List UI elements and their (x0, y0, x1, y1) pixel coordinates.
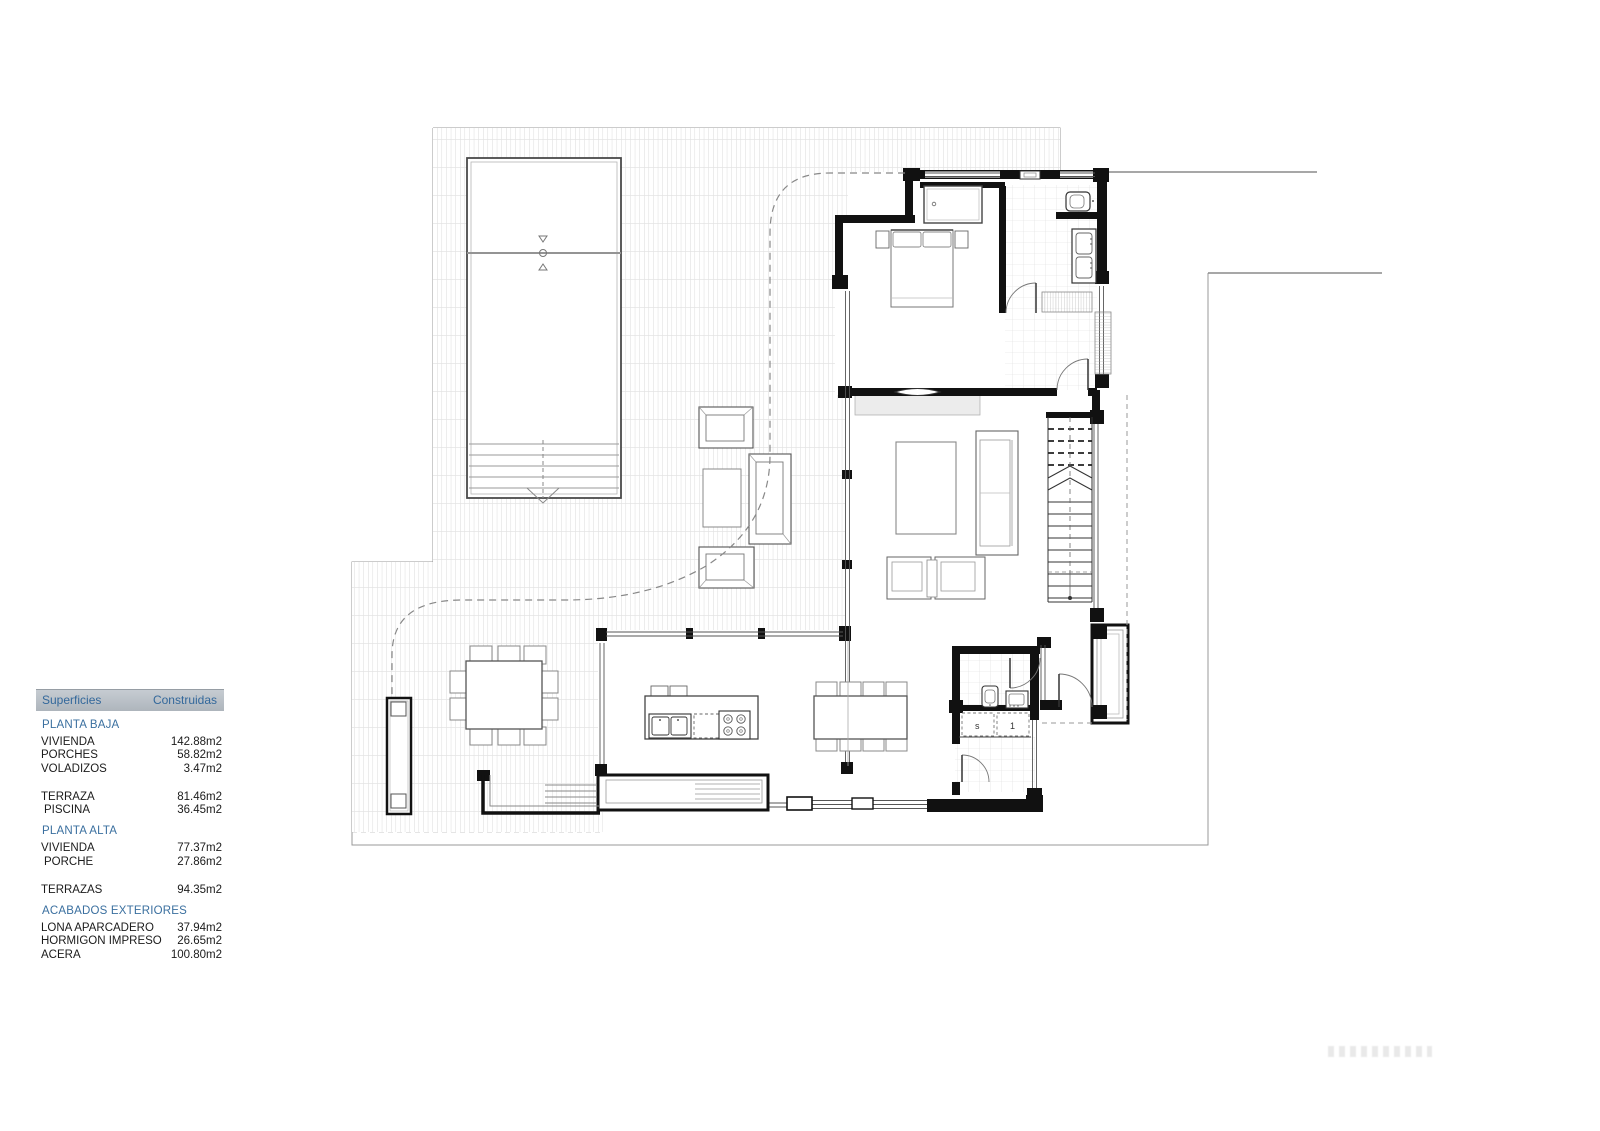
outdoor-table (466, 661, 542, 729)
sliding-window-marker (852, 798, 873, 809)
floor-plan-svg: s 1 (0, 0, 1600, 1131)
legend-row: LONA APARCADERO 37.94m2 (41, 922, 222, 935)
legend-panel: Superficies Construidas PLANTA BAJA VIVI… (36, 689, 224, 962)
dining-set (814, 682, 907, 751)
outdoor-coffee-table (703, 469, 741, 527)
legend-row: VIVIENDA 77.37m2 (41, 842, 222, 855)
legend-row: TERRAZA 81.46m2 (41, 791, 222, 804)
coffee-table (896, 442, 956, 534)
appliance-label-right: 1 (1010, 721, 1015, 731)
outdoor-armchair (699, 407, 753, 448)
legend-row: VOLADIZOS 3.47m2 (41, 763, 222, 776)
watermark (1328, 1046, 1432, 1057)
legend-row: PORCHE 27.86m2 (44, 856, 222, 869)
cooktop (719, 711, 750, 739)
wardrobe (924, 186, 982, 223)
legend-row: PISCINA 36.45m2 (44, 804, 222, 817)
legend-row: ACERA 100.80m2 (41, 949, 222, 962)
window-block (787, 797, 812, 810)
dining-table (814, 696, 907, 739)
legend-col-construidas: Construidas (153, 694, 217, 707)
legend-col-superficies: Superficies (42, 694, 101, 707)
planter (387, 698, 411, 814)
section-title-planta-baja: PLANTA BAJA (42, 719, 224, 732)
armchair (887, 557, 931, 599)
appliance-label-left: s (975, 721, 980, 731)
small-window-symbol (1020, 171, 1040, 179)
nightstand (955, 231, 968, 248)
outdoor-armchair (699, 547, 754, 588)
entry-porch (1092, 625, 1128, 723)
section-title-planta-alta: PLANTA ALTA (42, 825, 224, 838)
outdoor-sofa (749, 454, 791, 544)
toilet-symbol (982, 686, 998, 707)
sink-symbol (1006, 691, 1028, 708)
section-title-acabados-exteriores: ACABADOS EXTERIORES (42, 905, 224, 918)
toilet-symbol (1066, 192, 1094, 211)
legend-row: PORCHES 58.82m2 (41, 749, 222, 762)
kitchen-bay (598, 775, 768, 810)
double-sink-vanity (1072, 229, 1096, 283)
page-canvas: s 1 Superficies Construidas PLANTA BAJA … (0, 0, 1600, 1131)
legend-row: TERRAZAS 94.35m2 (41, 884, 222, 897)
armchair (935, 557, 985, 599)
legend-row: VIVIENDA 142.88m2 (41, 736, 222, 749)
sideboard (855, 394, 980, 415)
sofa (976, 431, 1018, 555)
pool (467, 158, 621, 503)
double-sink (649, 714, 691, 738)
legend-header: Superficies Construidas (36, 689, 224, 711)
side-table (927, 560, 937, 597)
legend-row: HORMIGON IMPRESO 26.65m2 (41, 935, 222, 948)
nightstand (876, 231, 889, 248)
